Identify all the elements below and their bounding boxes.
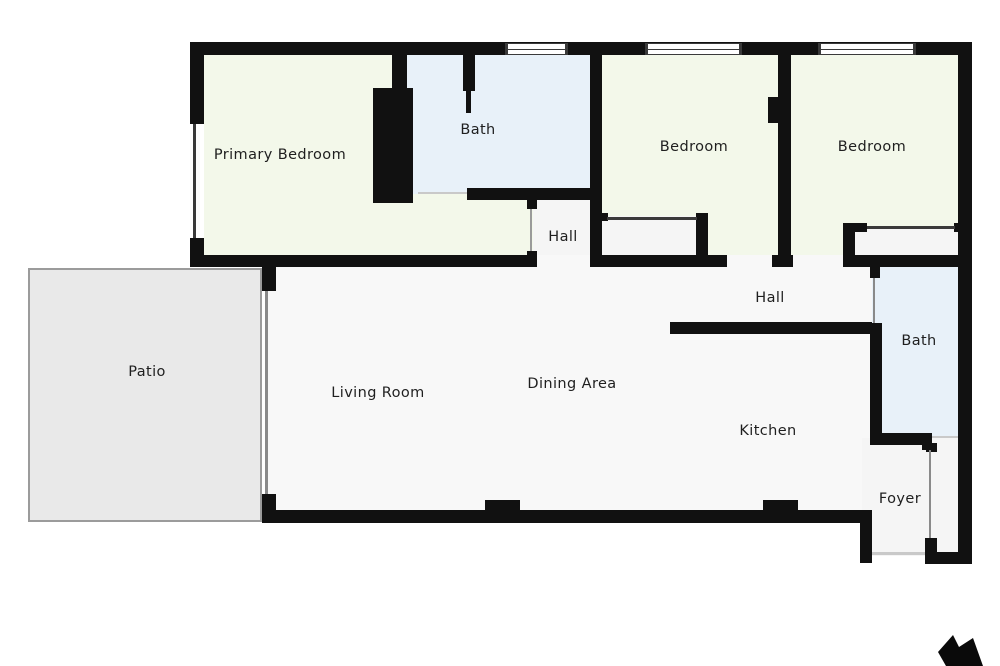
wall-closet2-bottom xyxy=(843,255,972,267)
wall-foyer-bottom xyxy=(925,552,972,564)
room-label-foyer: Foyer xyxy=(879,491,921,507)
wall-divider-foot xyxy=(772,255,793,267)
wall-living-left-top xyxy=(262,267,276,291)
door-closet1-sliding xyxy=(607,217,697,220)
room-label-patio: Patio xyxy=(128,364,166,380)
wall-section-bottom-left xyxy=(190,255,532,267)
wall-bottom-pillar-2 xyxy=(763,500,798,511)
wall-divider-pilaster xyxy=(768,97,778,123)
floor-bath-right xyxy=(872,262,962,438)
room-label-dining-area: Dining Area xyxy=(527,376,616,392)
wall-hall-left-stub-top xyxy=(527,197,537,209)
wall-bedroom1-bottom xyxy=(590,255,727,267)
window-left-icon xyxy=(193,124,196,238)
wall-closet2-stub-left xyxy=(843,223,867,232)
door-patio-slider xyxy=(265,291,268,494)
door-closet2-sliding xyxy=(867,226,955,229)
door-bath-top xyxy=(418,192,467,194)
wall-bath-partition xyxy=(463,55,475,91)
room-label-primary-bedroom: Primary Bedroom xyxy=(214,147,346,163)
wall-bath-left-jog xyxy=(392,42,407,88)
room-label-kitchen: Kitchen xyxy=(739,423,796,439)
room-label-bedroom-2: Bedroom xyxy=(838,139,906,155)
door-bath-right xyxy=(873,278,875,323)
floor-plan: Primary Bedroom Bath Bedroom Bedroom Hal… xyxy=(0,0,1000,666)
wall-foyer-closet-stub xyxy=(926,443,937,452)
wall-kitchen-hall xyxy=(670,322,872,334)
door-primary-bedroom xyxy=(530,209,532,251)
wall-bath-right-left xyxy=(870,323,882,445)
north-arrow-icon xyxy=(928,628,990,666)
room-label-hall-lower: Hall xyxy=(755,290,784,306)
room-label-bath-top: Bath xyxy=(460,122,495,138)
wall-right xyxy=(958,42,972,563)
wall-left-upper xyxy=(190,42,204,124)
room-label-bedroom-1: Bedroom xyxy=(660,139,728,155)
wall-closet2-stub-right xyxy=(954,223,966,232)
window-bedroom-1-icon xyxy=(645,43,742,55)
wall-bath-bedroom1-divider xyxy=(590,42,602,267)
wall-chase-block xyxy=(373,88,413,203)
room-label-bath-right: Bath xyxy=(901,333,936,349)
window-bedroom-2-icon xyxy=(818,43,916,55)
wall-bath-partition-stub xyxy=(466,90,471,113)
door-bath-right-bottom xyxy=(932,436,958,438)
patio-area xyxy=(28,268,262,522)
room-label-living-room: Living Room xyxy=(331,385,424,401)
door-foyer-closet xyxy=(929,450,931,538)
wall-bath-right-stub-top xyxy=(870,266,880,278)
wall-bedroom-divider xyxy=(778,42,791,267)
wall-bottom xyxy=(262,510,872,523)
room-label-hall-upper: Hall xyxy=(548,229,577,245)
wall-foyer-left xyxy=(860,510,872,563)
door-entry xyxy=(872,552,925,555)
window-bath-icon xyxy=(505,43,568,55)
floor-bath-top xyxy=(404,48,594,194)
wall-bottom-pillar-1 xyxy=(485,500,520,511)
